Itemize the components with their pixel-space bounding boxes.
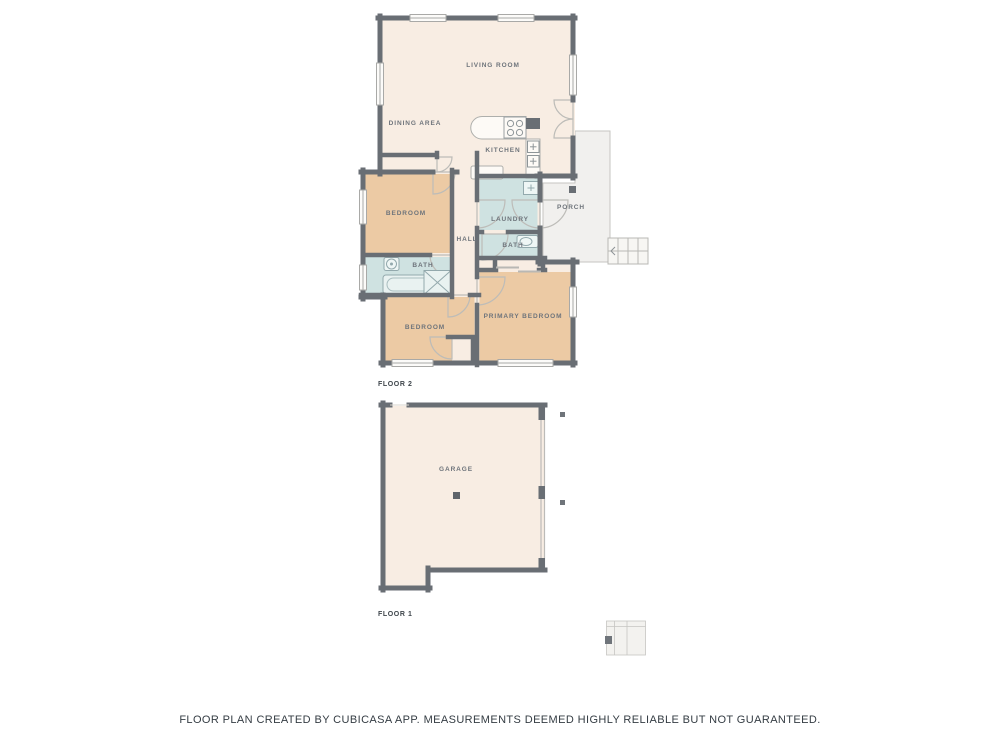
window <box>570 287 577 317</box>
room-label-porch: PORCH <box>557 205 585 212</box>
porch-post <box>569 186 576 193</box>
window <box>498 360 553 367</box>
floor2-label: FLOOR 2 <box>378 381 413 388</box>
window <box>360 190 367 224</box>
room-label-bath-left: BATH <box>412 263 433 270</box>
window <box>498 15 534 22</box>
kitchen-wall-block <box>526 118 540 129</box>
deck-post <box>605 636 612 644</box>
room-label-dining-area: DINING AREA <box>389 121 442 128</box>
exterior-post-dot <box>560 500 565 505</box>
garage-footprint <box>383 406 545 588</box>
deck-structure <box>605 621 646 655</box>
appliance-icon <box>528 156 540 168</box>
garage-center-post <box>453 492 460 499</box>
room-label-garage: GARAGE <box>439 467 473 474</box>
room-label-bedroom-left: BEDROOM <box>386 211 426 218</box>
room-label-laundry: LAUNDRY <box>491 217 529 224</box>
exterior-post-dot <box>560 412 565 417</box>
room-label-hall: HALL <box>457 237 478 244</box>
window <box>570 55 577 95</box>
floor1-label: FLOOR 1 <box>378 611 413 618</box>
closet-bottom-fill <box>452 339 473 363</box>
porch-stairs <box>608 238 648 264</box>
window <box>392 360 433 367</box>
room-label-primary-bedroom: PRIMARY BEDROOM <box>484 314 563 321</box>
window <box>360 265 367 290</box>
room-label-living-room: LIVING ROOM <box>466 63 520 70</box>
stove <box>504 117 526 138</box>
window <box>377 63 384 105</box>
window <box>410 15 446 22</box>
floor-plan-drawing <box>0 0 1000 750</box>
room-label-bath-right: BATH <box>502 243 523 250</box>
footer-disclaimer: FLOOR PLAN CREATED BY CUBICASA APP. MEAS… <box>0 714 1000 726</box>
floor-plan-page: LIVING ROOM DINING AREA KITCHEN BEDROOM … <box>0 0 1000 750</box>
appliance-icon <box>528 141 540 153</box>
room-label-kitchen: KITCHEN <box>485 148 520 155</box>
room-label-bedroom-bottom: BEDROOM <box>405 325 445 332</box>
floor1-plan <box>381 403 646 655</box>
